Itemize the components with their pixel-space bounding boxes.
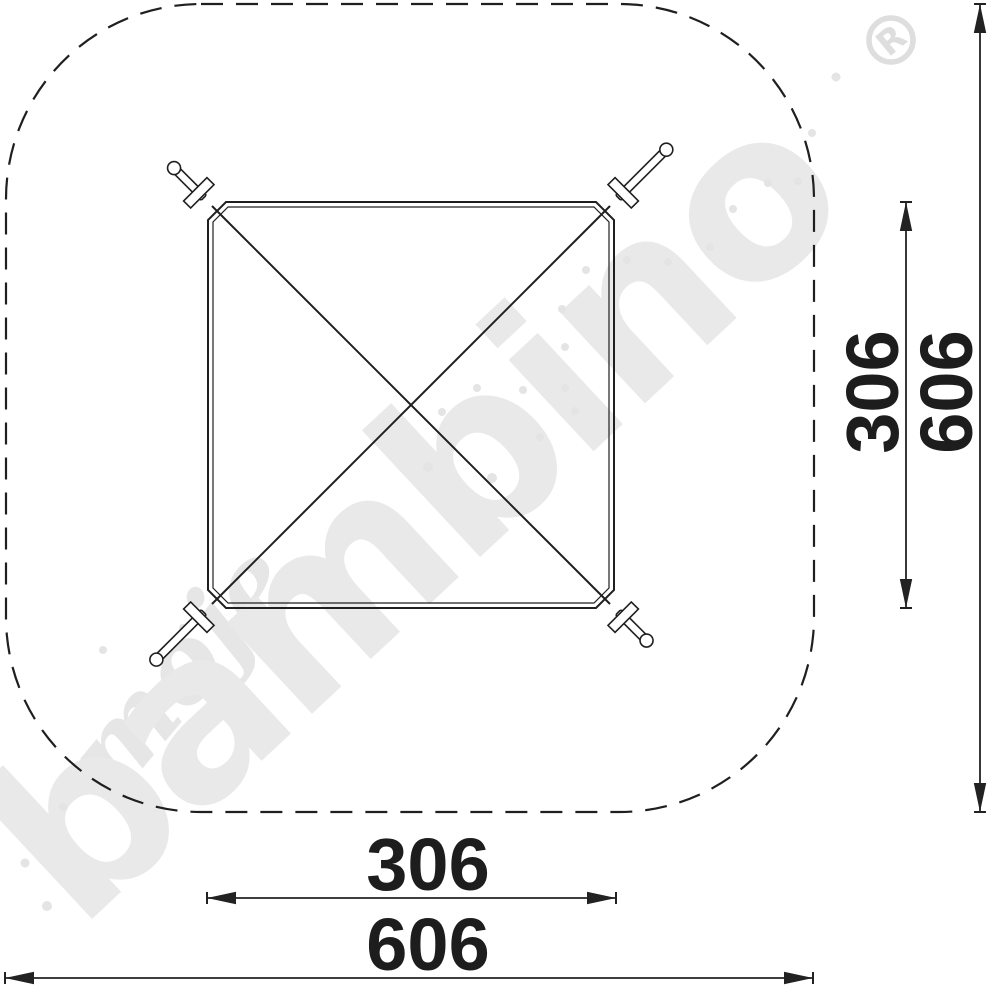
arrowhead-right-icon — [587, 892, 616, 904]
confetti-dot — [561, 343, 569, 351]
dimension-label-right-606: 606 — [905, 330, 988, 453]
corner-handle-top-left — [158, 152, 216, 210]
arrowhead-up-icon — [900, 202, 912, 231]
confetti-dot — [519, 386, 527, 394]
dimension-label-right-306: 306 — [831, 330, 914, 453]
confetti-dot — [536, 433, 544, 441]
confetti-dot — [99, 646, 107, 654]
confetti-dot — [664, 258, 672, 266]
confetti-dot — [794, 177, 802, 185]
confetti-dot — [42, 901, 52, 911]
confetti-dot — [832, 73, 841, 82]
technical-drawing-page: moje bambino R — [0, 0, 1000, 1000]
confetti-dot — [558, 305, 566, 313]
confetti-dot — [438, 408, 446, 416]
confetti-dot — [729, 205, 737, 213]
registered-trademark-icon: R — [869, 17, 915, 64]
dimension-right-606: 606 — [905, 4, 988, 812]
confetti-dot — [764, 179, 772, 187]
drawing-svg: moje bambino R — [0, 0, 1000, 1000]
confetti-dot — [623, 256, 631, 264]
corner-handle-bottom-right — [607, 601, 663, 657]
arrowhead-left-icon — [207, 892, 236, 904]
arrowhead-up-icon — [974, 4, 986, 33]
confetti-dot — [582, 266, 590, 274]
confetti-dot — [59, 803, 67, 811]
arrowhead-left-icon — [5, 972, 34, 984]
confetti-dot — [423, 462, 433, 472]
confetti-dot — [21, 859, 30, 868]
confetti-dot — [473, 384, 481, 392]
confetti-dot — [706, 243, 714, 251]
arrowhead-down-icon — [900, 579, 912, 608]
arrowhead-right-icon — [784, 972, 813, 984]
dimension-label-bottom-606: 606 — [366, 903, 489, 986]
dimension-label-bottom-306: 306 — [366, 823, 489, 906]
dimension-bottom-306: 306 — [207, 823, 616, 906]
confetti-dot — [561, 384, 569, 392]
confetti-dot — [808, 129, 816, 137]
arrowhead-down-icon — [974, 783, 986, 812]
confetti-dot — [571, 407, 579, 415]
